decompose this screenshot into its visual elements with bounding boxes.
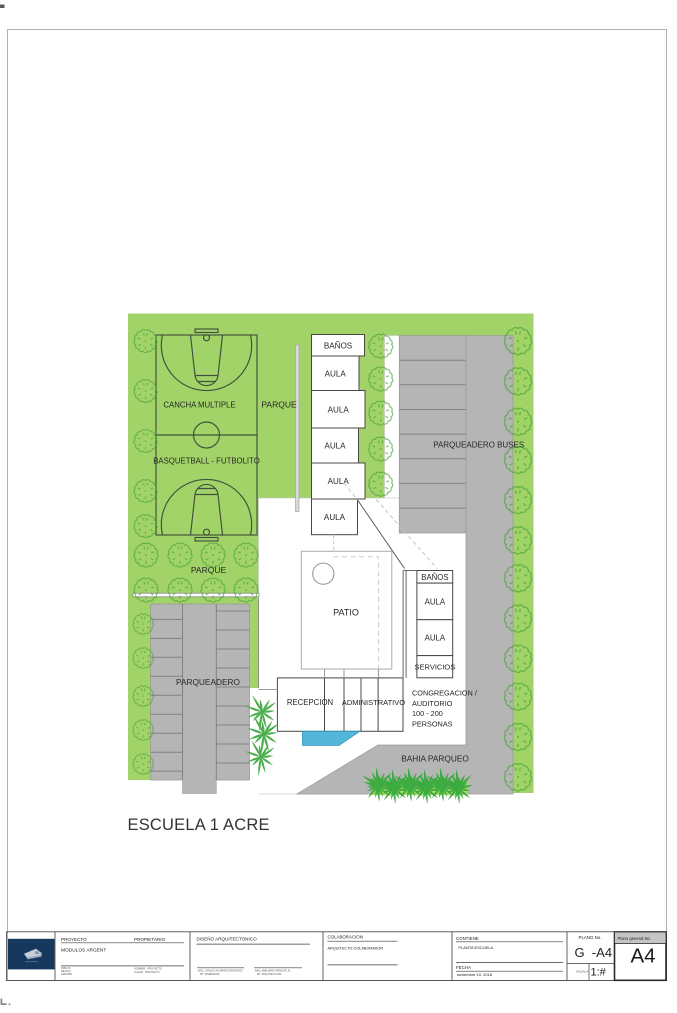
svg-text:MODULOS ARGENT: MODULOS ARGENT [61,947,106,953]
svg-text:RECEPCION: RECEPCION [287,698,333,707]
svg-text:AULA: AULA [425,597,446,606]
svg-text:noviembre 10, 2016: noviembre 10, 2016 [457,972,493,977]
svg-text:PROYECTO: PROYECTO [61,937,87,942]
svg-text:CANCHA MULTIPLE: CANCHA MULTIPLE [163,401,235,410]
svg-text:DISEÑO ARQUITECTONICO: DISEÑO ARQUITECTONICO [197,936,258,942]
svg-text:BAHIA PARQUEO: BAHIA PARQUEO [401,754,469,764]
svg-text:CONTIENE: CONTIENE [456,936,479,941]
svg-text:BAÑOS: BAÑOS [421,573,448,582]
svg-text:PARQUE: PARQUE [191,565,227,575]
svg-text:AULA: AULA [328,405,350,414]
svg-text:MT. DISEÑADOR: MT. DISEÑADOR [200,973,220,976]
svg-text:AUDITORIO: AUDITORIO [412,699,453,708]
svg-text:AULA: AULA [324,442,346,451]
svg-text:PROPIETARIO: PROPIETARIO [134,937,165,942]
svg-text:NOMBRE PROYECTO: NOMBRE PROYECTO [134,967,162,971]
svg-text:CONGREGACION /: CONGREGACION / [412,689,478,698]
svg-text:PARQUEADERO BUSES: PARQUEADERO BUSES [433,441,524,450]
svg-text:G -A4: G -A4 [575,945,613,960]
svg-text:PATIO: PATIO [333,607,359,617]
svg-text:AULA: AULA [425,634,446,643]
svg-text:LUGAR PROYECTO: LUGAR PROYECTO [134,970,160,974]
svg-text:ARQUITECTO-COLABORADOR: ARQUITECTO-COLABORADOR [328,946,384,950]
svg-text:PARQUE: PARQUE [261,400,297,410]
svg-text:ADMINISTRATIVO: ADMINISTRATIVO [342,698,405,707]
svg-text:PLANO No.: PLANO No. [579,935,602,940]
svg-text:PLANTA ESCUELA: PLANTA ESCUELA [458,945,493,950]
svg-text:BAÑOS: BAÑOS [324,341,353,350]
svg-text:Plano general No.: Plano general No. [618,936,652,941]
svg-text:COLABORACION: COLABORACION [328,935,363,940]
svg-text:1:#: 1:# [591,967,607,979]
svg-text:PERSONAS: PERSONAS [412,719,453,728]
svg-text:PARQUEADERO: PARQUEADERO [176,677,240,687]
svg-text:APROBO: APROBO [61,972,72,976]
svg-text:MT. ARQUITECTURA: MT. ARQUITECTURA [257,973,282,976]
svg-text:AULA: AULA [325,369,347,378]
svg-text:A4: A4 [630,945,655,968]
svg-text:ESCUELA 1 ACRE: ESCUELA 1 ACRE [128,816,270,834]
svg-text:AULA: AULA [324,513,346,522]
svg-text:100 - 200: 100 - 200 [412,709,443,718]
svg-text:SERVICIOS: SERVICIOS [415,663,456,672]
svg-text:ESCALA: ESCALA [576,970,588,974]
svg-text:FECHA: FECHA [456,965,471,970]
svg-text:BASQUETBALL - FUTBOLITO: BASQUETBALL - FUTBOLITO [153,456,260,465]
